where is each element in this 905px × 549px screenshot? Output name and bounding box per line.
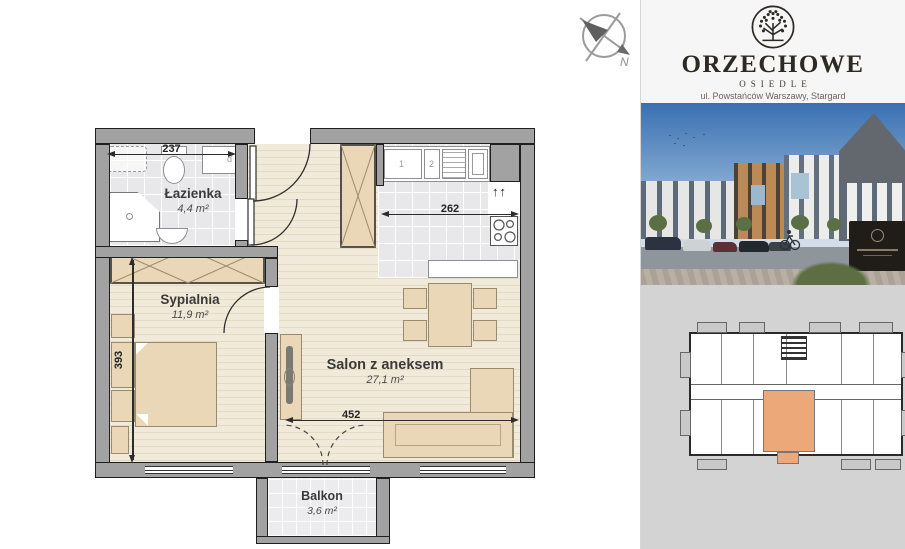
bathroom-label: Łazienka 4,4 m² [138,186,248,217]
fridge-inner [472,153,484,175]
brand-subtitle: OSIEDLE [641,79,905,89]
locator-balcony-stub [697,459,727,470]
locator-balcony-stub [809,322,841,333]
development-photo [641,103,905,285]
street-tree [649,215,667,231]
arrow-right [228,151,236,157]
highlighted-unit-balcony [777,452,799,464]
street-tree [696,219,712,233]
tv-base [284,368,295,386]
wall-bedroom-living-upper [265,258,278,287]
dimension-value: 262 [441,203,459,215]
locator-balcony-stub [680,410,691,436]
balcony-wall-bottom [256,536,390,544]
brand-title: ORZECHOWE [641,51,905,79]
balcony-label: Balkon 3,6 m² [270,489,374,518]
room-area: 27,1 m² [300,374,470,388]
locator-balcony-stub [841,459,871,470]
wall-corner-block [490,144,520,182]
wall-left [95,144,110,478]
wall-right [520,144,535,478]
locator-balcony-stub [875,459,901,470]
floor-plan-page: d 1 2 ↑↑ [0,0,905,549]
kitchen-cabinet-2: 2 [424,149,440,179]
dining-chair [473,288,497,309]
arrow-left [107,151,115,157]
balcony-door-window [282,466,370,474]
building-locator-section [641,285,905,549]
living-room-window [420,466,506,474]
street-tree [827,218,841,231]
tree-logo-icon [750,4,796,50]
dining-chair [473,320,497,341]
dining-chair [403,320,427,341]
car [713,242,737,252]
balcony-glass [791,173,809,199]
arrow-left [285,417,293,423]
dimension-kitchen-width: 262 [382,208,518,222]
room-area: 3,6 m² [270,505,374,518]
wall-top-left [95,128,255,144]
kitchen-island [428,260,518,278]
shower-drain [126,213,133,220]
arrow-down [129,455,135,463]
room-name: Balkon [270,489,374,505]
room-name: Łazienka [138,186,248,203]
wall-bathroom-bedroom [95,246,278,258]
sign-text-line [857,249,898,251]
counter-label-2: 2 [429,159,434,169]
kitchen-sink-cabinet: 1 [384,149,422,179]
locator-balcony-stub [859,322,893,333]
locator-balcony-stub [901,410,905,436]
room-area: 11,9 m² [135,309,245,323]
birds [669,135,671,136]
sidebar: ORZECHOWE OSIEDLE ul. Powstańców Warszaw… [640,0,905,549]
brand-logo-section: ORZECHOWE OSIEDLE ul. Powstańców Warszaw… [641,0,905,103]
dimension-value: 237 [162,143,180,155]
locator-balcony-stub [697,322,727,333]
dining-table [428,283,472,347]
arrow-right [511,211,519,217]
building-locator-plan [689,332,903,456]
bedroom-label: Sypialnia 11,9 m² [135,292,245,323]
hall-wardrobe [340,144,376,248]
dimension-bedroom-depth: 393 [126,258,140,462]
locator-balcony-stub [680,352,691,378]
car [645,237,681,250]
vent-arrows: ↑↑ [492,184,507,199]
balcony-wall-right [376,478,390,540]
dimension-bathroom-width: 237 [108,148,235,162]
balcony-wall-left [256,478,268,540]
car [739,241,769,252]
room-area: 4,4 m² [138,203,248,217]
wall-top-right [310,128,535,144]
brand-address: ul. Powstańców Warszawy, Stargard [641,91,905,101]
wall-kitchen-stub [376,144,384,186]
cyclist [779,227,801,251]
bedroom-door-opening [264,287,279,333]
compass-icon: N [572,6,636,70]
dimension-value: 452 [342,409,360,421]
dimension-value: 393 [113,351,125,369]
sign-logo-ring [871,229,884,242]
dining-chair [403,288,427,309]
arrow-left [381,211,389,217]
arrow-right [511,417,519,423]
sign-text-line [863,255,892,256]
counter-label-1: 1 [399,159,404,169]
wall-bedroom-living-lower [265,333,278,462]
grass-foreground [791,261,871,285]
locator-balcony-stub [901,352,905,378]
locator-balcony-stub [739,322,765,333]
highlighted-unit [763,390,815,452]
compass-north-label: N [620,55,629,69]
street-tree [736,217,752,231]
arrow-up [129,257,135,265]
living-room-label: Salon z aneksem 27,1 m² [300,356,470,388]
bedroom-window [145,466,233,474]
room-name: Salon z aneksem [300,356,470,374]
balcony-glass [751,185,765,205]
car [683,240,711,251]
dimension-living-width: 452 [286,414,518,428]
locator-stairwell [781,336,807,360]
dish-rack [442,149,466,179]
room-name: Sypialnia [135,292,245,309]
